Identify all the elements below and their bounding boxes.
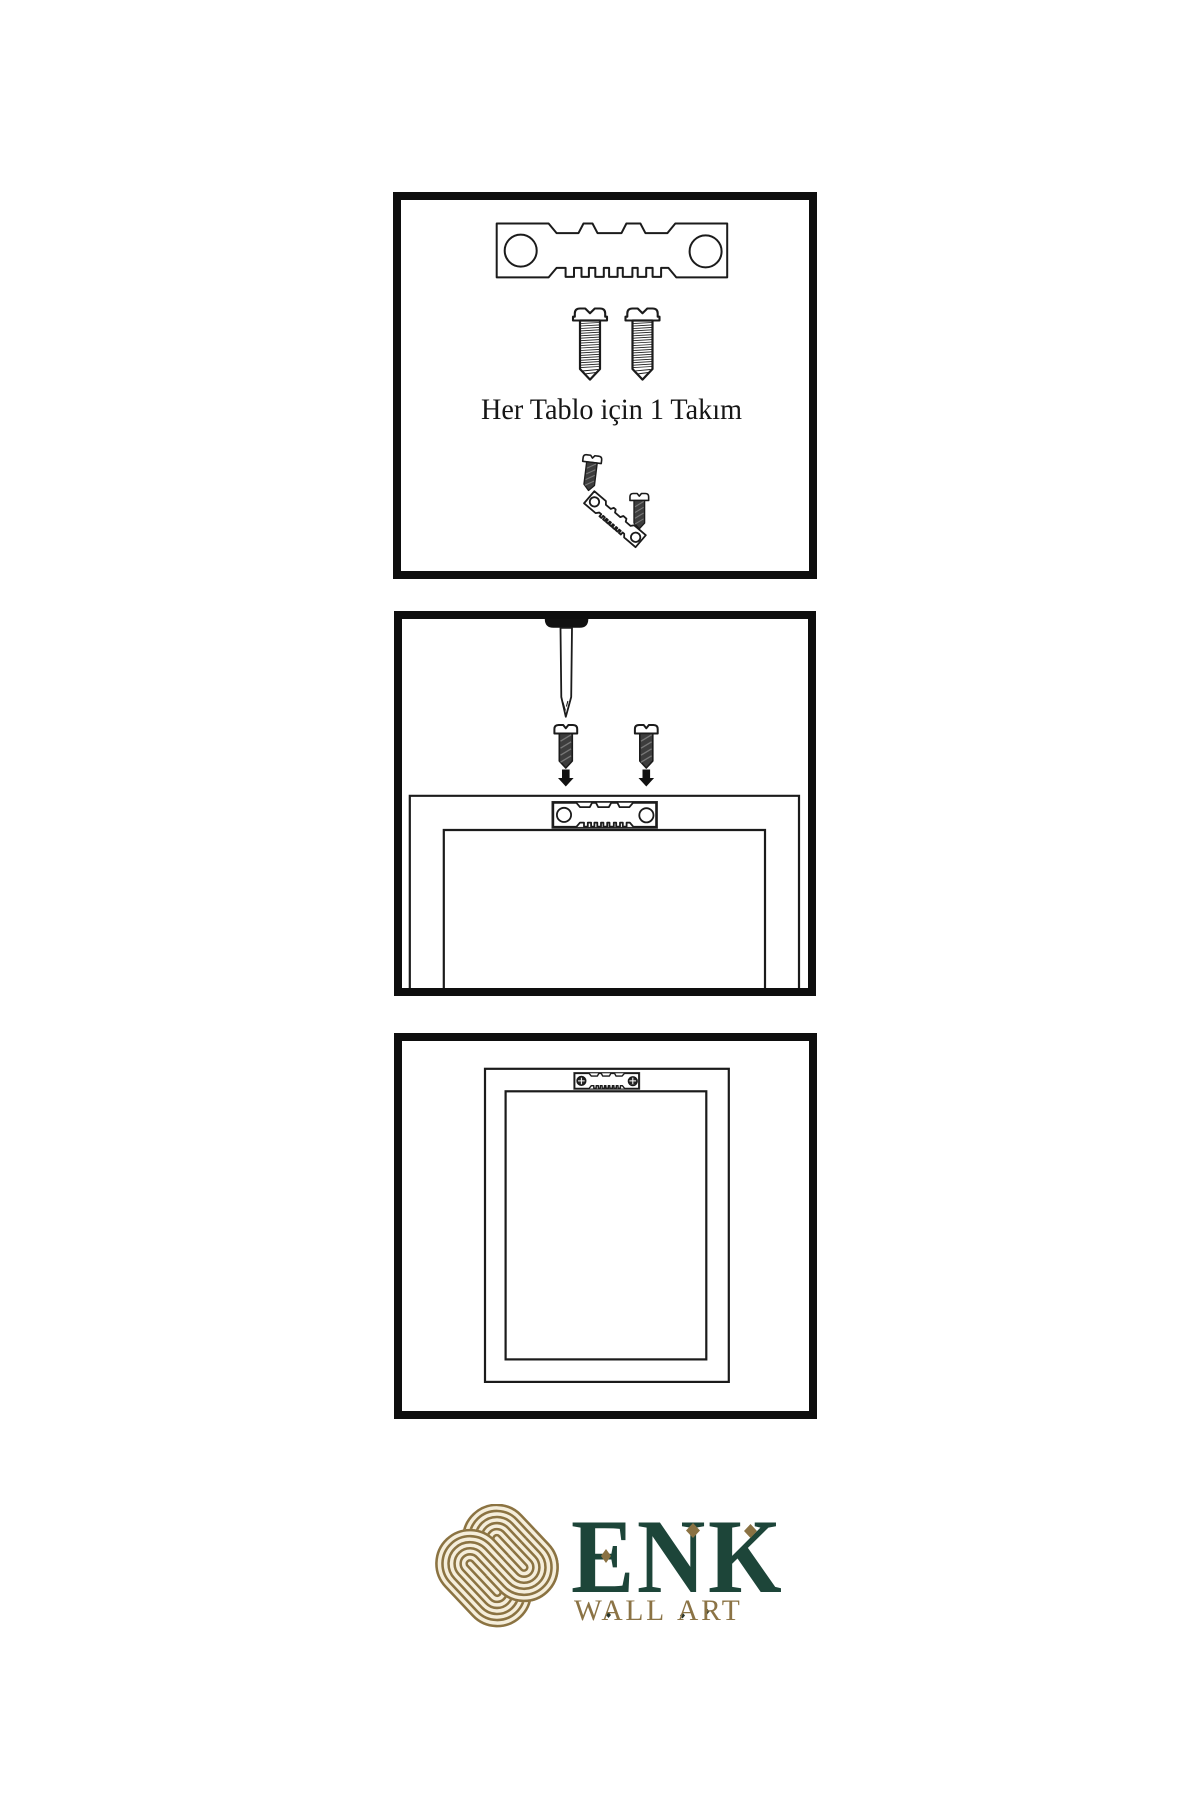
svg-text:Her Tablo için 1 Takım: Her Tablo için 1 Takım	[481, 393, 742, 426]
